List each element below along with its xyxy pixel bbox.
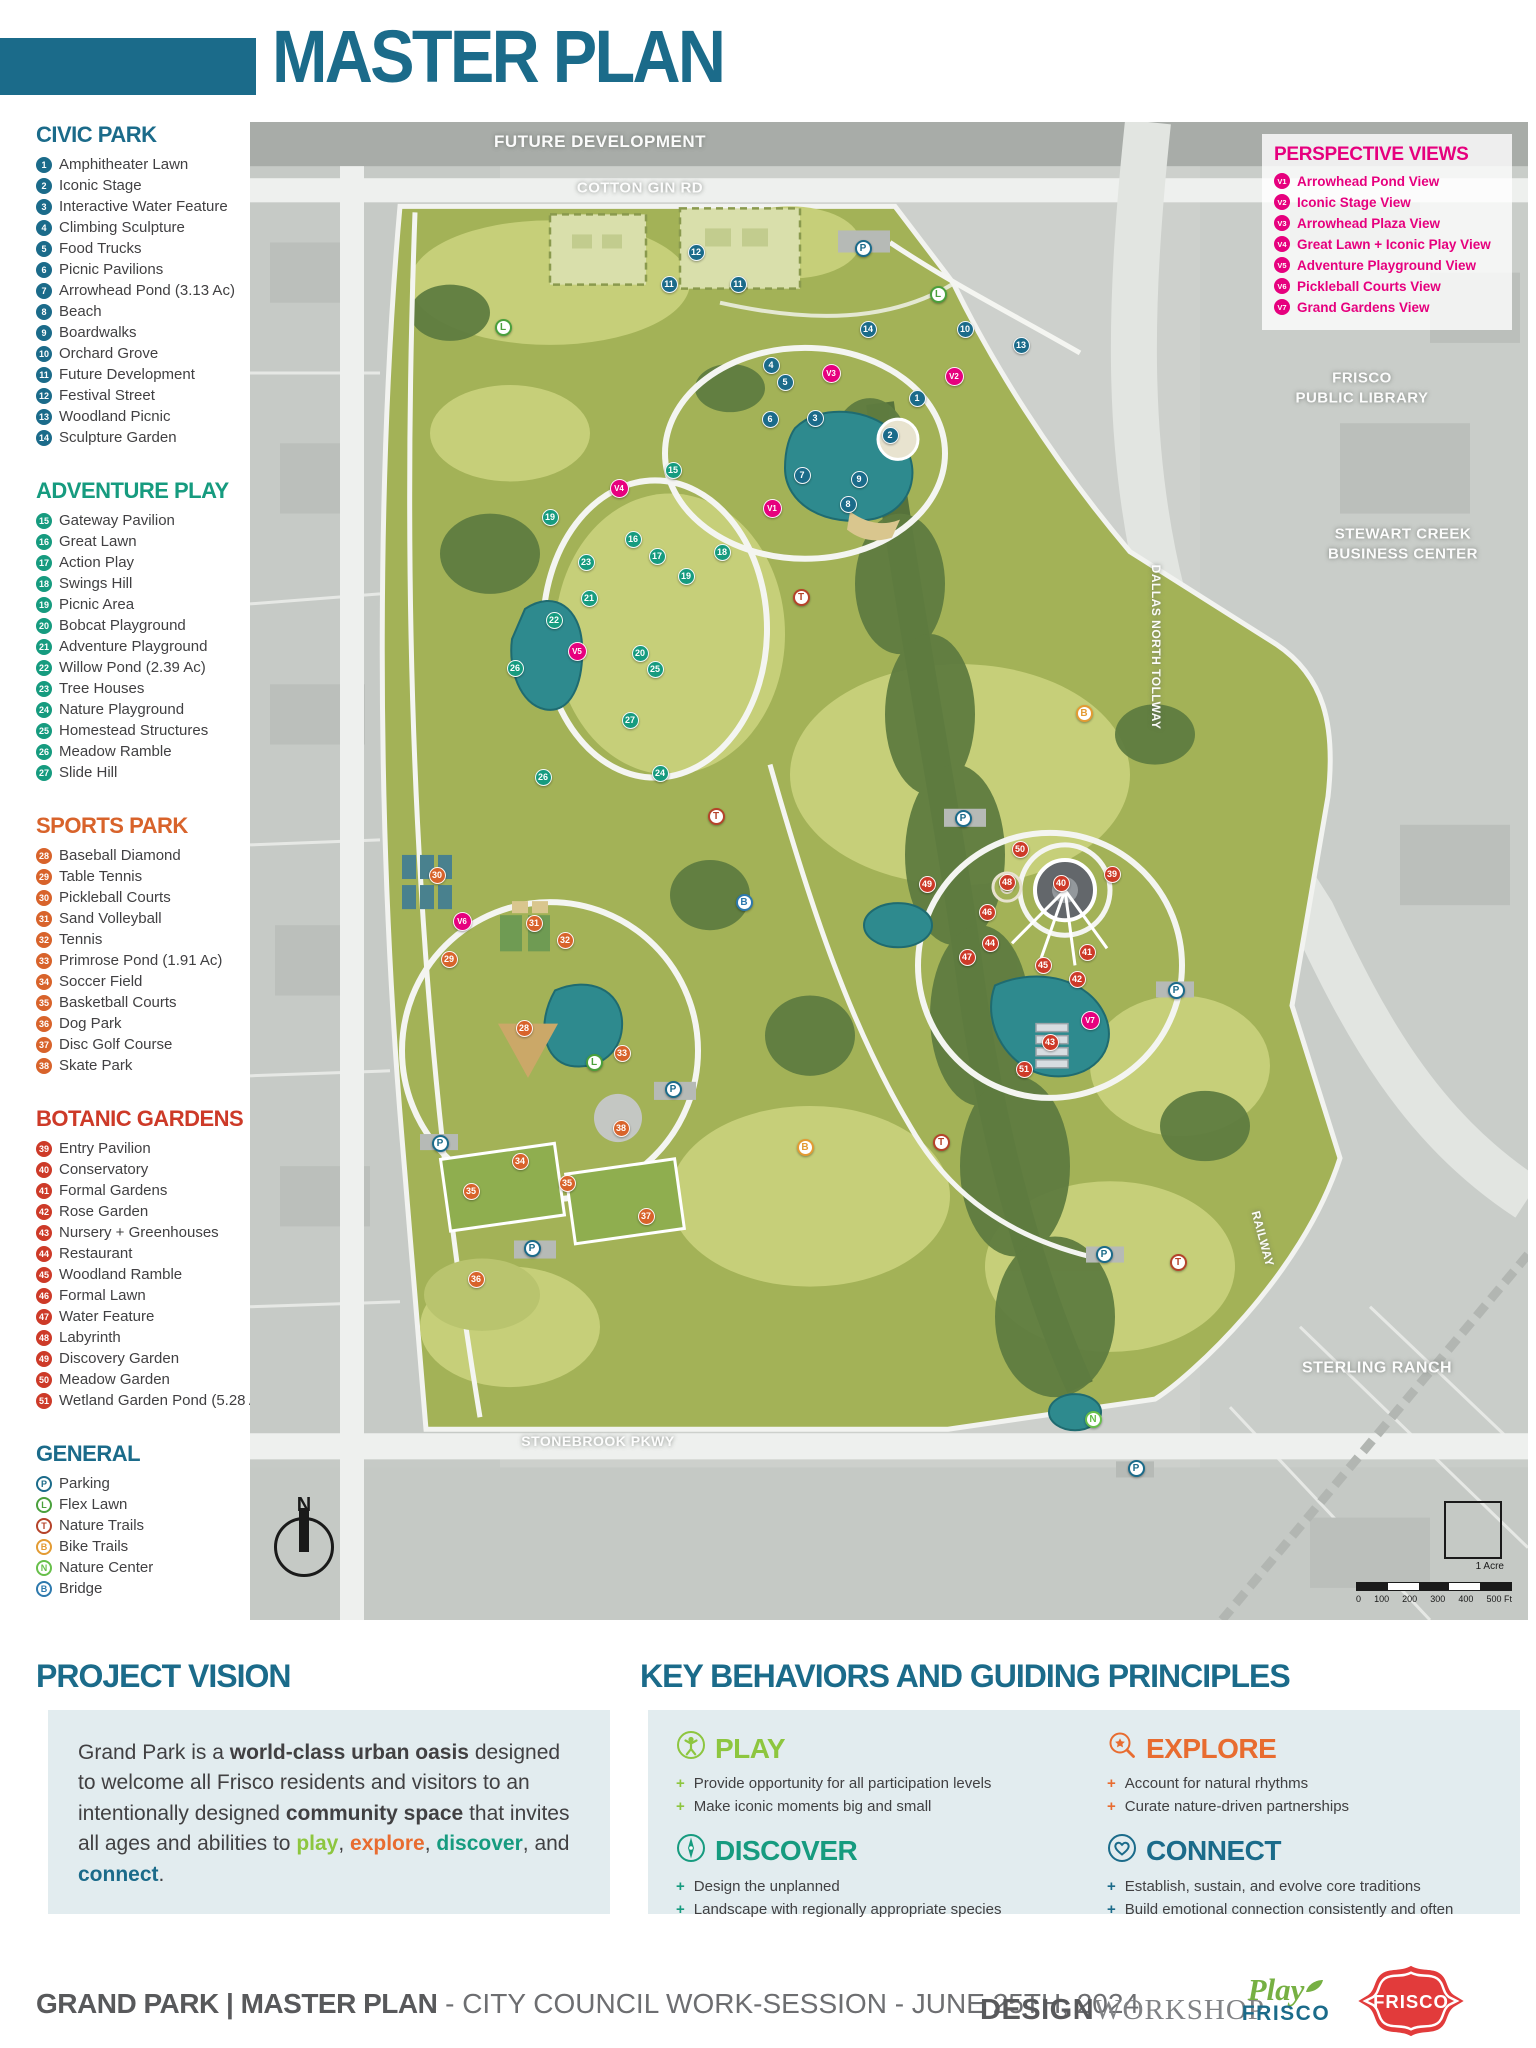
- behavior-bullet: +Design the unplanned: [676, 1875, 1061, 1898]
- legend-item: 49Discovery Garden: [36, 1348, 250, 1369]
- legend-number-badge: 28: [36, 848, 52, 864]
- map-marker-2: 2: [882, 427, 899, 444]
- legend-number-badge: 39: [36, 1141, 52, 1157]
- legend-item: 48Labyrinth: [36, 1327, 250, 1348]
- behavior-bullets: +Account for natural rhythms+Curate natu…: [1107, 1772, 1492, 1819]
- legend-number-badge: 27: [36, 765, 52, 781]
- legend-item-label: Meadow Ramble: [59, 743, 172, 760]
- legend-item: NNature Center: [36, 1557, 250, 1578]
- legend-number-badge: 38: [36, 1058, 52, 1074]
- legend-item: 26Meadow Ramble: [36, 741, 250, 762]
- legend-item: 34Soccer Field: [36, 971, 250, 992]
- behavior-card-explore: EXPLORE+Account for natural rhythms+Cura…: [1107, 1730, 1492, 1819]
- legend-number-badge: 23: [36, 681, 52, 697]
- map-marker-V4: V4: [610, 479, 629, 498]
- behavior-bullet: +Make iconic moments big and small: [676, 1795, 1061, 1818]
- legend-number-badge: 10: [36, 346, 52, 362]
- legend-number-badge: 35: [36, 995, 52, 1011]
- legend-item-label: Disc Golf Course: [59, 1036, 172, 1053]
- legend-number-badge: 24: [36, 702, 52, 718]
- legend-item-label: Basketball Courts: [59, 994, 177, 1011]
- legend-item-label: Nature Center: [59, 1559, 153, 1576]
- map-marker-9: 9: [851, 471, 868, 488]
- legend-item: 3Interactive Water Feature: [36, 196, 250, 217]
- legend-item-label: Beach: [59, 303, 102, 320]
- perspective-view-item: V4Great Lawn + Iconic Play View: [1274, 236, 1500, 252]
- legend-item: 46Formal Lawn: [36, 1285, 250, 1306]
- map-marker-4: 4: [763, 357, 780, 374]
- scale-tick: 500 Ft: [1486, 1594, 1512, 1604]
- view-number-badge: V3: [1274, 215, 1290, 231]
- perspective-view-item: V3Arrowhead Plaza View: [1274, 215, 1500, 231]
- map-marker-26: 26: [507, 660, 524, 677]
- map-marker-11: 11: [661, 276, 678, 293]
- map-marker-15: 15: [665, 462, 682, 479]
- map-label: STEWART CREEKBUSINESS CENTER: [1328, 525, 1478, 564]
- legend-number-badge: 6: [36, 262, 52, 278]
- scale-tick: 0: [1356, 1594, 1361, 1604]
- vision-text-segment: world-class urban oasis: [230, 1741, 469, 1764]
- behavior-card-play: PLAY+Provide opportunity for all partici…: [676, 1730, 1061, 1819]
- map-marker-35: 35: [559, 1175, 576, 1192]
- master-plan-page: MASTER PLAN CIVIC PARK1Amphitheater Lawn…: [0, 0, 1536, 2048]
- legend-item-label: Rose Garden: [59, 1203, 148, 1220]
- legend-section-civic-park: CIVIC PARK1Amphitheater Lawn2Iconic Stag…: [36, 122, 250, 448]
- legend-number-badge: 8: [36, 304, 52, 320]
- connect-icon: [1107, 1833, 1137, 1870]
- legend-number-badge: 49: [36, 1351, 52, 1367]
- behavior-bullet: +Establish, sustain, and evolve core tra…: [1107, 1875, 1492, 1898]
- bridge-icon: B: [36, 1581, 52, 1597]
- page-title: MASTER PLAN: [272, 14, 723, 99]
- nature-center-icon: N: [36, 1560, 52, 1576]
- scale-tick: 400: [1458, 1594, 1473, 1604]
- legend-item: 29Table Tennis: [36, 866, 250, 887]
- legend-number-badge: 12: [36, 388, 52, 404]
- map-marker-51: 51: [1016, 1061, 1033, 1078]
- legend-item-label: Amphitheater Lawn: [59, 156, 188, 173]
- view-number-badge: V5: [1274, 257, 1290, 273]
- legend-number-badge: 47: [36, 1309, 52, 1325]
- map-marker-43: 43: [1042, 1034, 1059, 1051]
- behavior-name: PLAY: [715, 1733, 785, 1765]
- legend-item: 50Meadow Garden: [36, 1369, 250, 1390]
- legend-item-label: Sculpture Garden: [59, 429, 177, 446]
- map-marker-18: 18: [714, 544, 731, 561]
- legend-number-badge: 42: [36, 1204, 52, 1220]
- view-number-badge: V2: [1274, 194, 1290, 210]
- bullet-text: Make iconic moments big and small: [694, 1795, 932, 1818]
- legend-item: 33Primrose Pond (1.91 Ac): [36, 950, 250, 971]
- map-marker-P: P: [1168, 982, 1185, 999]
- legend-item-label: Picnic Pavilions: [59, 261, 163, 278]
- park-map: FUTURE DEVELOPMENTCOTTON GIN RDFRISCOPUB…: [250, 122, 1528, 1620]
- map-marker-B: B: [1076, 705, 1093, 722]
- legend-item: 47Water Feature: [36, 1306, 250, 1327]
- legend-item-label: Climbing Sculpture: [59, 219, 185, 236]
- legend-number-badge: 34: [36, 974, 52, 990]
- legend-item: 24Nature Playground: [36, 699, 250, 720]
- map-marker-30: 30: [429, 867, 446, 884]
- behavior-bullets: +Design the unplanned+Landscape with reg…: [676, 1875, 1061, 1922]
- map-marker-26: 26: [535, 769, 552, 786]
- legend-item-label: Conservatory: [59, 1161, 148, 1178]
- map-marker-27: 27: [622, 712, 639, 729]
- legend-item-label: Adventure Playground: [59, 638, 207, 655]
- legend-item: 8Beach: [36, 301, 250, 322]
- map-marker-21: 21: [581, 590, 598, 607]
- vision-text-segment: , and: [523, 1832, 570, 1855]
- plus-icon: +: [676, 1795, 685, 1818]
- map-marker-16: 16: [625, 531, 642, 548]
- map-marker-10: 10: [957, 321, 974, 338]
- legend-item-label: Labyrinth: [59, 1329, 121, 1346]
- legend-item-label: Woodland Ramble: [59, 1266, 182, 1283]
- legend-number-badge: 30: [36, 890, 52, 906]
- map-marker-32: 32: [557, 932, 574, 949]
- map-marker-11: 11: [730, 276, 747, 293]
- legend-item-label: Bobcat Playground: [59, 617, 186, 634]
- legend-item-label: Dog Park: [59, 1015, 122, 1032]
- legend-number-badge: 21: [36, 639, 52, 655]
- legend-item: 51Wetland Garden Pond (5.28 Ac): [36, 1390, 250, 1411]
- legend-number-badge: 48: [36, 1330, 52, 1346]
- legend-item: 18Swings Hill: [36, 573, 250, 594]
- legend-item-label: Formal Gardens: [59, 1182, 167, 1199]
- legend-section-general: GENERALPParkingLFlex LawnTNature TrailsB…: [36, 1441, 250, 1599]
- map-marker-22: 22: [546, 612, 563, 629]
- perspective-views-panel: PERSPECTIVE VIEWS V1Arrowhead Pond ViewV…: [1262, 134, 1512, 330]
- plus-icon: +: [676, 1875, 685, 1898]
- behavior-card-header: CONNECT: [1107, 1833, 1492, 1870]
- legend-number-badge: 16: [36, 534, 52, 550]
- map-marker-48: 48: [999, 874, 1016, 891]
- legend-item: 22Willow Pond (2.39 Ac): [36, 657, 250, 678]
- legend-item: 45Woodland Ramble: [36, 1264, 250, 1285]
- map-marker-7: 7: [794, 467, 811, 484]
- legend-number-badge: 26: [36, 744, 52, 760]
- view-item-label: Pickleball Courts View: [1297, 279, 1441, 294]
- legend-item-label: Discovery Garden: [59, 1350, 179, 1367]
- vision-text-segment: community space: [286, 1802, 463, 1825]
- legend-number-badge: 45: [36, 1267, 52, 1283]
- legend-number-badge: 44: [36, 1246, 52, 1262]
- map-marker-6: 6: [762, 411, 779, 428]
- legend-item: 15Gateway Pavilion: [36, 510, 250, 531]
- svg-text:FRISCO: FRISCO: [1373, 1991, 1449, 2012]
- legend-item: 20Bobcat Playground: [36, 615, 250, 636]
- scale-bar: 1 Acre 0100200300400500 Ft: [1356, 1501, 1512, 1604]
- legend-item-label: Bridge: [59, 1580, 102, 1597]
- legend-item-label: Restaurant: [59, 1245, 132, 1262]
- map-marker-19: 19: [542, 509, 559, 526]
- behavior-card-header: EXPLORE: [1107, 1730, 1492, 1767]
- legend-section-title: BOTANIC GARDENS: [36, 1106, 250, 1132]
- behavior-bullet: +Landscape with regionally appropriate s…: [676, 1898, 1061, 1921]
- legend-item: 41Formal Gardens: [36, 1180, 250, 1201]
- map-label: FRISCOPUBLIC LIBRARY: [1295, 369, 1428, 408]
- map-label: STONEBROOK PKWY: [521, 1432, 674, 1450]
- plus-icon: +: [1107, 1875, 1116, 1898]
- legend-number-badge: 33: [36, 953, 52, 969]
- legend-item-label: Tennis: [59, 931, 102, 948]
- legend-number-badge: 32: [36, 932, 52, 948]
- map-marker-V5: V5: [568, 642, 587, 661]
- perspective-view-item: V7Grand Gardens View: [1274, 299, 1500, 315]
- map-marker-5: 5: [777, 374, 794, 391]
- legend-number-badge: 43: [36, 1225, 52, 1241]
- vision-text-segment: discover: [436, 1832, 522, 1855]
- one-acre-label: 1 Acre: [1356, 1561, 1504, 1572]
- map-marker-50: 50: [1012, 841, 1029, 858]
- behavior-bullets: +Establish, sustain, and evolve core tra…: [1107, 1875, 1492, 1922]
- legend-number-badge: 15: [36, 513, 52, 529]
- legend-number-badge: 4: [36, 220, 52, 236]
- view-number-badge: V1: [1274, 173, 1290, 189]
- perspective-view-item: V6Pickleball Courts View: [1274, 278, 1500, 294]
- legend-item-label: Primrose Pond (1.91 Ac): [59, 952, 222, 969]
- map-marker-41: 41: [1079, 944, 1096, 961]
- map-marker-V6: V6: [453, 912, 472, 931]
- legend-item: 39Entry Pavilion: [36, 1138, 250, 1159]
- vision-text-segment: connect: [78, 1863, 159, 1886]
- legend-item-label: Willow Pond (2.39 Ac): [59, 659, 206, 676]
- legend-item-label: Soccer Field: [59, 973, 142, 990]
- map-marker-42: 42: [1069, 971, 1086, 988]
- one-acre-box: [1444, 1501, 1502, 1559]
- view-number-badge: V6: [1274, 278, 1290, 294]
- view-item-label: Iconic Stage View: [1297, 195, 1411, 210]
- legend-item-label: Meadow Garden: [59, 1371, 170, 1388]
- legend-item: 25Homestead Structures: [36, 720, 250, 741]
- vision-text-segment: .: [159, 1863, 165, 1886]
- behavior-card-header: PLAY: [676, 1730, 1061, 1767]
- footer-caption: GRAND PARK | MASTER PLAN - CITY COUNCIL …: [36, 1988, 1139, 2020]
- map-marker-29: 29: [441, 951, 458, 968]
- legend-item-label: Water Feature: [59, 1308, 154, 1325]
- legend-number-badge: 3: [36, 199, 52, 215]
- behavior-bullet: +Provide opportunity for all participati…: [676, 1772, 1061, 1795]
- legend-item-label: Skate Park: [59, 1057, 132, 1074]
- bike-trails-icon: B: [36, 1539, 52, 1555]
- legend-item-label: Action Play: [59, 554, 134, 571]
- perspective-views-title: PERSPECTIVE VIEWS: [1274, 144, 1500, 166]
- parking-icon: P: [36, 1476, 52, 1492]
- play-icon: [676, 1730, 706, 1767]
- legend-item-label: Flex Lawn: [59, 1496, 127, 1513]
- legend-number-badge: 1: [36, 157, 52, 173]
- legend-item: 10Orchard Grove: [36, 343, 250, 364]
- legend-item: 11Future Development: [36, 364, 250, 385]
- legend-item: 1Amphitheater Lawn: [36, 154, 250, 175]
- bullet-text: Establish, sustain, and evolve core trad…: [1125, 1875, 1421, 1898]
- map-marker-P: P: [955, 810, 972, 827]
- legend-number-badge: 2: [36, 178, 52, 194]
- legend-item-label: Parking: [59, 1475, 110, 1492]
- legend-item-label: Slide Hill: [59, 764, 117, 781]
- frisco-city-logo: FRISCO: [1352, 1962, 1470, 2045]
- view-item-label: Great Lawn + Iconic Play View: [1297, 237, 1491, 252]
- map-marker-38: 38: [613, 1120, 630, 1137]
- behavior-bullets: +Provide opportunity for all participati…: [676, 1772, 1061, 1819]
- vision-text-segment: ,: [425, 1832, 437, 1855]
- legend-section-title: GENERAL: [36, 1441, 250, 1467]
- legend-item: LFlex Lawn: [36, 1494, 250, 1515]
- behavior-name: EXPLORE: [1146, 1733, 1276, 1765]
- legend-number-badge: 19: [36, 597, 52, 613]
- scale-tick: 300: [1430, 1594, 1445, 1604]
- legend-item: 36Dog Park: [36, 1013, 250, 1034]
- legend-item: 32Tennis: [36, 929, 250, 950]
- vision-text-segment: Grand Park is a: [78, 1741, 230, 1764]
- legend-item-label: Gateway Pavilion: [59, 512, 175, 529]
- legend-item-label: Nursery + Greenhouses: [59, 1224, 219, 1241]
- plus-icon: +: [1107, 1898, 1116, 1921]
- view-number-badge: V7: [1274, 299, 1290, 315]
- key-behaviors-panel: PLAY+Provide opportunity for all partici…: [648, 1710, 1520, 1914]
- bullet-text: Landscape with regionally appropriate sp…: [694, 1898, 1002, 1921]
- vision-text-segment: play: [296, 1832, 338, 1855]
- behavior-card-discover: DISCOVER+Design the unplanned+Landscape …: [676, 1833, 1061, 1922]
- legend-number-badge: 11: [36, 367, 52, 383]
- behavior-bullet: +Curate nature-driven partnerships: [1107, 1795, 1492, 1818]
- map-marker-N: N: [1085, 1411, 1102, 1428]
- legend-item: PParking: [36, 1473, 250, 1494]
- map-marker-36: 36: [468, 1271, 485, 1288]
- map-marker-P: P: [1096, 1246, 1113, 1263]
- legend-number-badge: 40: [36, 1162, 52, 1178]
- map-marker-37: 37: [638, 1208, 655, 1225]
- map-marker-P: P: [855, 240, 872, 257]
- map-marker-L: L: [586, 1054, 603, 1071]
- map-marker-8: 8: [840, 496, 857, 513]
- behavior-card-connect: CONNECT+Establish, sustain, and evolve c…: [1107, 1833, 1492, 1922]
- legend-item-label: Swings Hill: [59, 575, 132, 592]
- view-item-label: Grand Gardens View: [1297, 300, 1430, 315]
- behavior-bullet: +Account for natural rhythms: [1107, 1772, 1492, 1795]
- key-behaviors-title: KEY BEHAVIORS AND GUIDING PRINCIPLES: [640, 1658, 1290, 1695]
- legend-number-badge: 7: [36, 283, 52, 299]
- map-marker-B: B: [736, 894, 753, 911]
- legend-item: 42Rose Garden: [36, 1201, 250, 1222]
- legend-item-label: Pickleball Courts: [59, 889, 171, 906]
- legend-number-badge: 13: [36, 409, 52, 425]
- map-marker-P: P: [524, 1240, 541, 1257]
- legend-item-label: Nature Trails: [59, 1517, 144, 1534]
- map-marker-31: 31: [526, 915, 543, 932]
- map-marker-T: T: [793, 589, 810, 606]
- legend-item-label: Table Tennis: [59, 868, 142, 885]
- map-marker-3: 3: [807, 410, 824, 427]
- legend-item-label: Baseball Diamond: [59, 847, 181, 864]
- perspective-view-item: V1Arrowhead Pond View: [1274, 173, 1500, 189]
- map-marker-P: P: [665, 1081, 682, 1098]
- legend-item-label: Festival Street: [59, 387, 155, 404]
- scale-tick: 100: [1374, 1594, 1389, 1604]
- legend-number-badge: 14: [36, 430, 52, 446]
- map-marker-47: 47: [959, 949, 976, 966]
- legend-item: 38Skate Park: [36, 1055, 250, 1076]
- map-marker-35: 35: [463, 1183, 480, 1200]
- map-marker-1: 1: [909, 390, 926, 407]
- map-label: STERLING RANCH: [1302, 1359, 1452, 1380]
- view-item-label: Adventure Playground View: [1297, 258, 1476, 273]
- map-marker-T: T: [1170, 1254, 1187, 1271]
- legend-item: TNature Trails: [36, 1515, 250, 1536]
- legend-item: 9Boardwalks: [36, 322, 250, 343]
- legend-number-badge: 31: [36, 911, 52, 927]
- nature-trails-icon: T: [36, 1518, 52, 1534]
- project-vision-text: Grand Park is a world-class urban oasis …: [48, 1710, 610, 1914]
- legend-item-label: Tree Houses: [59, 680, 144, 697]
- map-marker-49: 49: [919, 876, 936, 893]
- leaf-icon: [1304, 1978, 1324, 1994]
- legend-item: 27Slide Hill: [36, 762, 250, 783]
- map-marker-40: 40: [1053, 875, 1070, 892]
- legend: CIVIC PARK1Amphitheater Lawn2Iconic Stag…: [36, 122, 250, 1629]
- legend-item-label: Orchard Grove: [59, 345, 158, 362]
- legend-item-label: Homestead Structures: [59, 722, 208, 739]
- legend-number-badge: 22: [36, 660, 52, 676]
- explore-icon: [1107, 1730, 1137, 1767]
- legend-number-badge: 20: [36, 618, 52, 634]
- legend-number-badge: 50: [36, 1372, 52, 1388]
- map-marker-34: 34: [512, 1153, 529, 1170]
- flex-lawn-icon: L: [36, 1497, 52, 1513]
- map-marker-45: 45: [1035, 957, 1052, 974]
- legend-item-label: Arrowhead Pond (3.13 Ac): [59, 282, 235, 299]
- view-item-label: Arrowhead Plaza View: [1297, 216, 1440, 231]
- legend-item-label: Great Lawn: [59, 533, 137, 550]
- legend-section-title: SPORTS PARK: [36, 813, 250, 839]
- legend-number-badge: 46: [36, 1288, 52, 1304]
- bullet-text: Curate nature-driven partnerships: [1125, 1795, 1349, 1818]
- map-marker-V7: V7: [1081, 1011, 1100, 1030]
- plus-icon: +: [676, 1772, 685, 1795]
- map-marker-T: T: [933, 1134, 950, 1151]
- perspective-view-item: V2Iconic Stage View: [1274, 194, 1500, 210]
- legend-number-badge: 18: [36, 576, 52, 592]
- legend-number-badge: 36: [36, 1016, 52, 1032]
- behavior-bullet: +Build emotional connection consistently…: [1107, 1898, 1492, 1921]
- map-marker-24: 24: [652, 765, 669, 782]
- map-marker-39: 39: [1104, 866, 1121, 883]
- legend-item: 2Iconic Stage: [36, 175, 250, 196]
- plus-icon: +: [676, 1898, 685, 1921]
- legend-item-label: Future Development: [59, 366, 195, 383]
- behavior-name: DISCOVER: [715, 1835, 857, 1867]
- legend-number-badge: 5: [36, 241, 52, 257]
- legend-number-badge: 41: [36, 1183, 52, 1199]
- legend-item: 13Woodland Picnic: [36, 406, 250, 427]
- legend-number-badge: 25: [36, 723, 52, 739]
- map-marker-19: 19: [678, 568, 695, 585]
- north-compass-icon: N: [274, 1494, 334, 1577]
- map-marker-46: 46: [979, 904, 996, 921]
- vision-text-segment: explore: [350, 1832, 425, 1855]
- legend-item: 14Sculpture Garden: [36, 427, 250, 448]
- legend-number-badge: 37: [36, 1037, 52, 1053]
- view-number-badge: V4: [1274, 236, 1290, 252]
- map-marker-14: 14: [860, 321, 877, 338]
- legend-item: 40Conservatory: [36, 1159, 250, 1180]
- map-marker-23: 23: [578, 554, 595, 571]
- map-marker-P: P: [432, 1135, 449, 1152]
- legend-number-badge: 29: [36, 869, 52, 885]
- legend-item: 31Sand Volleyball: [36, 908, 250, 929]
- legend-item-label: Sand Volleyball: [59, 910, 162, 927]
- map-marker-25: 25: [647, 661, 664, 678]
